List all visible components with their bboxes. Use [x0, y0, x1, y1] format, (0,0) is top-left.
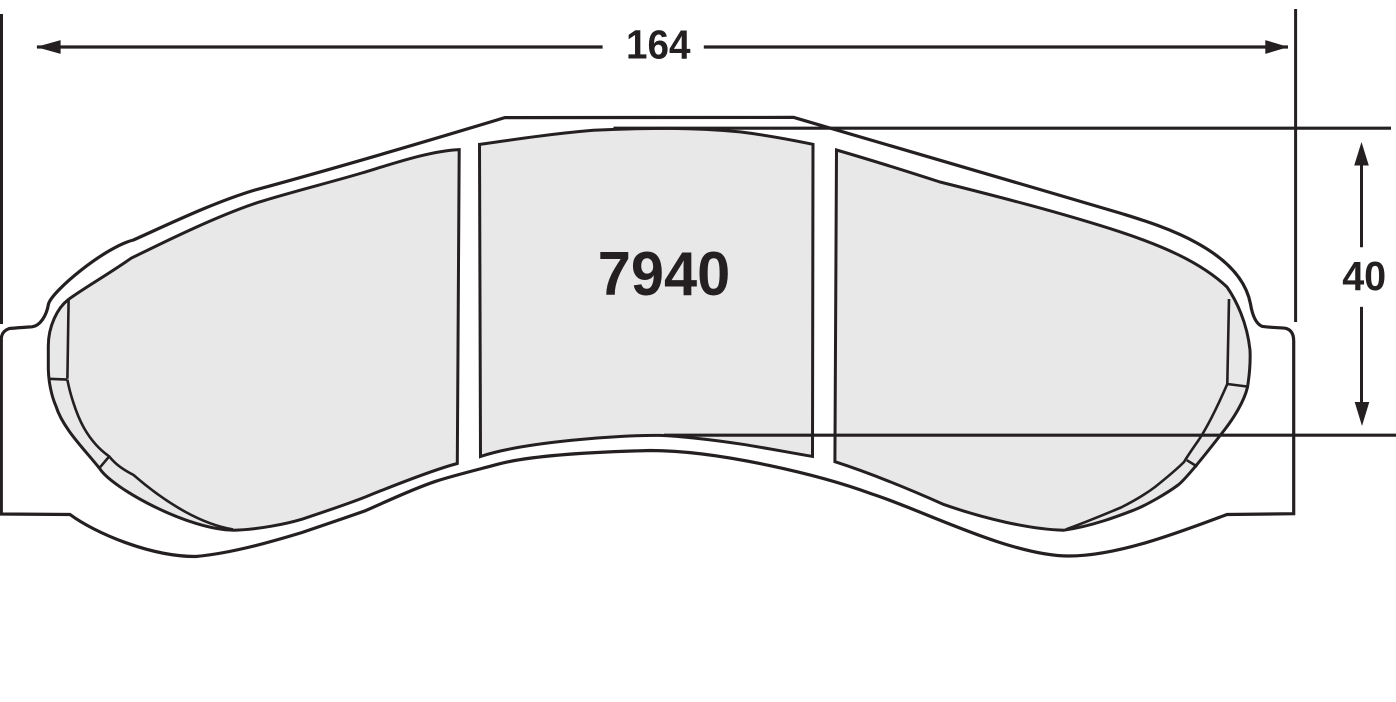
svg-text:164: 164: [626, 22, 691, 68]
svg-text:40: 40: [1342, 253, 1386, 299]
svg-text:7940: 7940: [598, 240, 731, 309]
